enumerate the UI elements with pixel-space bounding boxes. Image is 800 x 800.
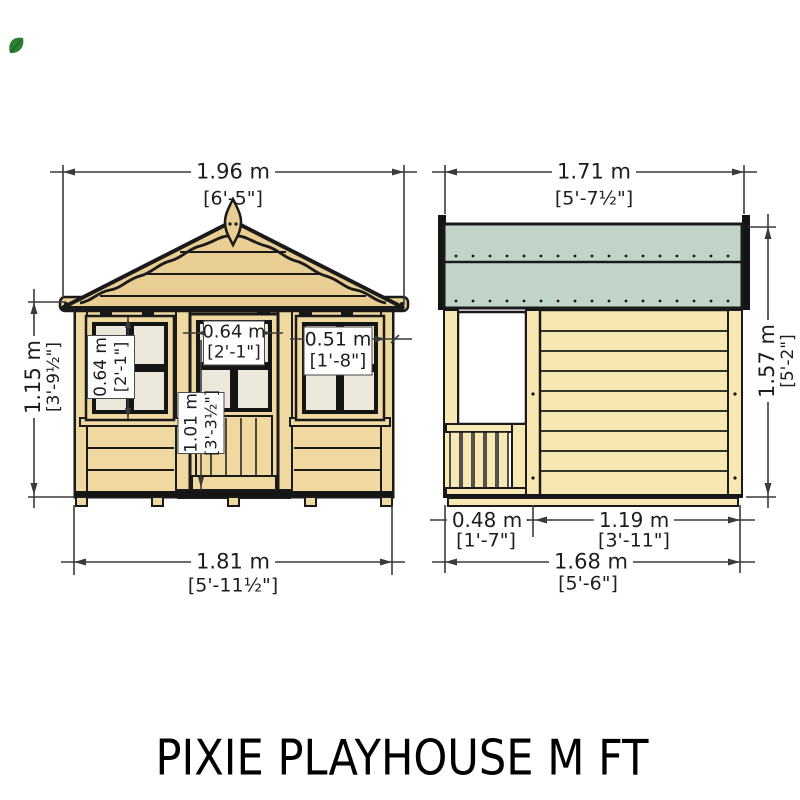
door-window-label: 0.64 m [2'-1"] (203, 321, 265, 366)
side-height-imperial: [5'-2"] (779, 324, 799, 398)
door-height-metric: 1.01 m (182, 390, 202, 456)
window-right-imperial: [1'-8"] (305, 352, 372, 373)
side-base-width-imperial: [5'-6"] (558, 574, 618, 595)
porch-depth-imperial: [1'-7"] (456, 531, 516, 552)
front-width-metric: 1.96 m (191, 160, 275, 183)
side-elevation-drawing (438, 215, 750, 506)
front-width-imperial: [6'-5"] (203, 189, 263, 210)
window-left-metric: 0.64 m (92, 337, 112, 397)
window-right-metric: 0.51 m (305, 330, 372, 352)
diagram-title: PIXIE PLAYHOUSE M FT (156, 730, 649, 787)
wall-length-imperial: [3'-11"] (598, 531, 670, 552)
side-roof (444, 224, 742, 308)
front-base-width-imperial: [5'-11½"] (188, 576, 278, 597)
front-height-label: 1.15 m [3'-9½"] (19, 336, 67, 418)
side-width-metric: 1.71 m (552, 160, 636, 183)
front-base-width-metric: 1.81 m (191, 550, 275, 573)
porch-balustrade (446, 424, 528, 497)
front-height-metric: 1.15 m (21, 340, 45, 414)
side-base-width-metric: 1.68 m (549, 550, 633, 573)
brand-leaf-icon (9, 38, 23, 53)
porch-opening (458, 312, 526, 424)
door-height-label: 1.01 m [3'-3½"] (178, 392, 225, 454)
side-width-imperial: [5'-7½"] (555, 189, 633, 210)
side-height-metric: 1.57 m (755, 324, 779, 398)
wall-length-metric: 1.19 m (594, 509, 674, 531)
door-height-imperial: [3'-3½"] (202, 390, 220, 456)
front-window-right-label: 0.51 m [1'-8"] (304, 327, 373, 376)
porch-depth-metric: 0.48 m (447, 509, 527, 531)
playhouse-dimension-diagram: 1.96 m [6'-5"] 1.15 m [3'-9½"] 0.64 m [2… (0, 0, 800, 800)
side-height-label: 1.57 m [5'-2"] (753, 320, 800, 402)
front-height-imperial: [3'-9½"] (45, 340, 65, 414)
diagram-linework (0, 0, 800, 800)
door-window-metric: 0.64 m (202, 323, 265, 344)
front-window-left-label: 0.64 m [2'-1"] (87, 335, 135, 399)
door-window-imperial: [2'-1"] (202, 344, 265, 364)
side-wall (540, 310, 742, 497)
window-left-imperial: [2'-1"] (112, 337, 130, 397)
